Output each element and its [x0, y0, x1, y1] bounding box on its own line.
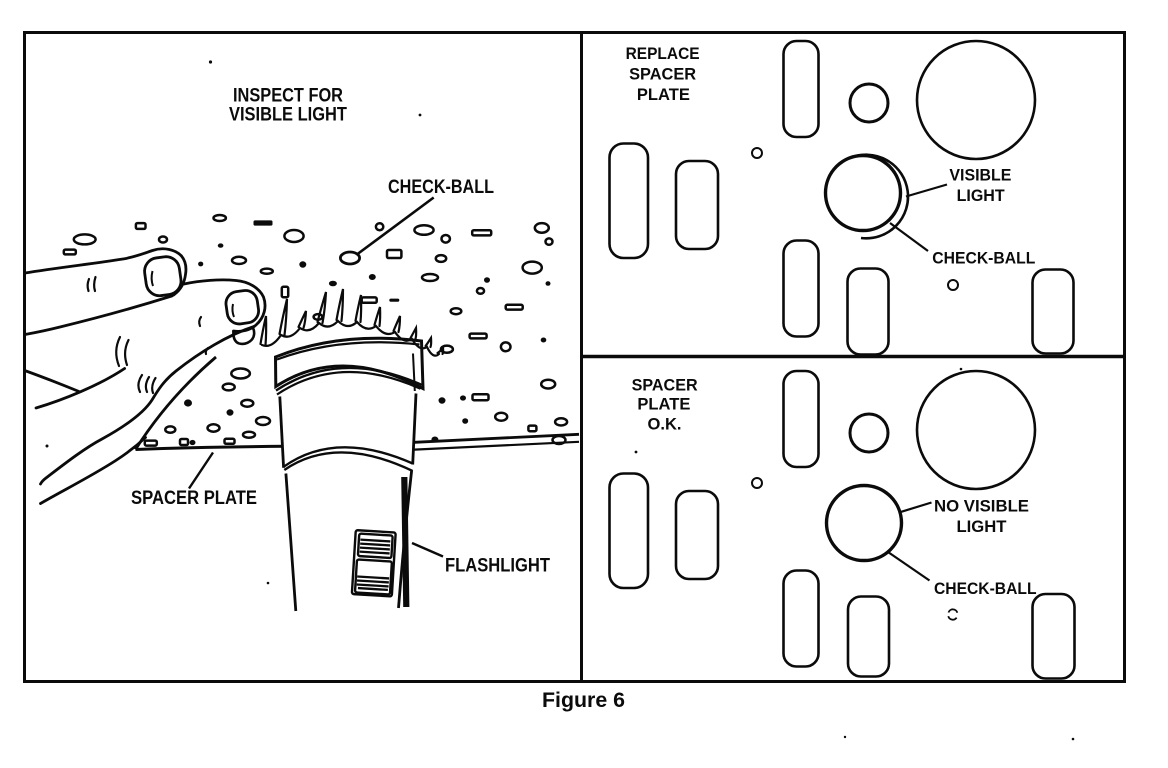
- svg-text:SPACER: SPACER: [629, 64, 696, 83]
- svg-text:NO VISIBLE: NO VISIBLE: [934, 496, 1029, 515]
- svg-text:LIGHT: LIGHT: [957, 186, 1006, 205]
- svg-text:PLATE: PLATE: [637, 395, 690, 414]
- svg-text:VISIBLE LIGHT: VISIBLE LIGHT: [229, 105, 347, 126]
- svg-text:REPLACE: REPLACE: [626, 44, 700, 63]
- svg-text:LIGHT: LIGHT: [957, 517, 1008, 536]
- svg-text:INSPECT FOR: INSPECT FOR: [233, 85, 343, 106]
- svg-text:SPACER PLATE: SPACER PLATE: [131, 488, 257, 509]
- svg-text:O.K.: O.K.: [648, 415, 682, 434]
- svg-text:Figure 6: Figure 6: [542, 689, 625, 712]
- svg-text:PLATE: PLATE: [637, 85, 690, 104]
- svg-text:CHECK-BALL: CHECK-BALL: [932, 248, 1035, 267]
- svg-text:FLASHLIGHT: FLASHLIGHT: [445, 556, 550, 577]
- svg-text:VISIBLE: VISIBLE: [949, 165, 1011, 184]
- svg-text:CHECK-BALL: CHECK-BALL: [934, 579, 1037, 598]
- svg-text:CHECK-BALL: CHECK-BALL: [388, 177, 494, 198]
- svg-text:SPACER: SPACER: [632, 376, 698, 395]
